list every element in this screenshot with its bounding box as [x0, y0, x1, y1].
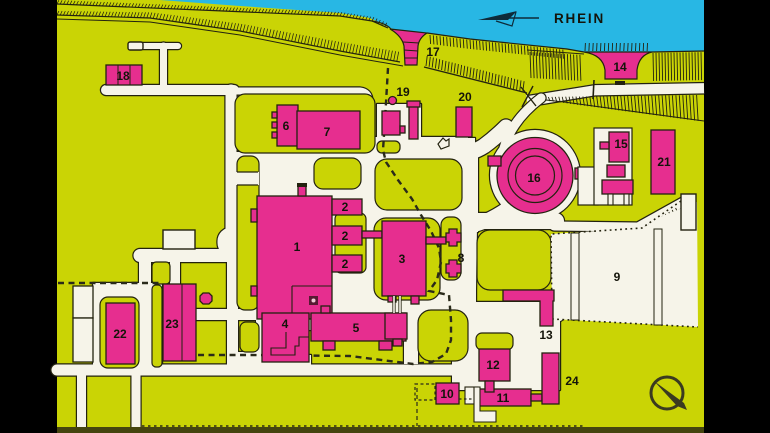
svg-text:21: 21 [657, 155, 671, 169]
svg-text:1: 1 [294, 240, 301, 254]
svg-text:13: 13 [539, 328, 553, 342]
svg-text:18: 18 [116, 69, 130, 83]
svg-text:2: 2 [342, 229, 349, 243]
svg-text:2: 2 [342, 200, 349, 214]
svg-text:3: 3 [399, 252, 406, 266]
svg-text:7: 7 [324, 125, 331, 139]
svg-text:14: 14 [613, 60, 627, 74]
svg-text:22: 22 [113, 327, 127, 341]
svg-text:9: 9 [614, 270, 621, 284]
svg-text:20: 20 [458, 90, 472, 104]
svg-text:23: 23 [165, 317, 179, 331]
svg-text:19: 19 [396, 85, 410, 99]
svg-text:12: 12 [486, 358, 500, 372]
svg-text:4: 4 [282, 317, 289, 331]
svg-text:15: 15 [614, 137, 628, 151]
svg-text:5: 5 [353, 321, 360, 335]
svg-text:6: 6 [283, 119, 290, 133]
svg-text:24: 24 [565, 374, 579, 388]
svg-text:17: 17 [426, 45, 440, 59]
svg-text:2: 2 [342, 257, 349, 271]
svg-text:RHEIN: RHEIN [554, 11, 605, 26]
svg-text:11: 11 [497, 391, 510, 405]
svg-text:8: 8 [458, 251, 465, 265]
svg-text:10: 10 [440, 387, 454, 401]
svg-text:16: 16 [527, 171, 541, 185]
